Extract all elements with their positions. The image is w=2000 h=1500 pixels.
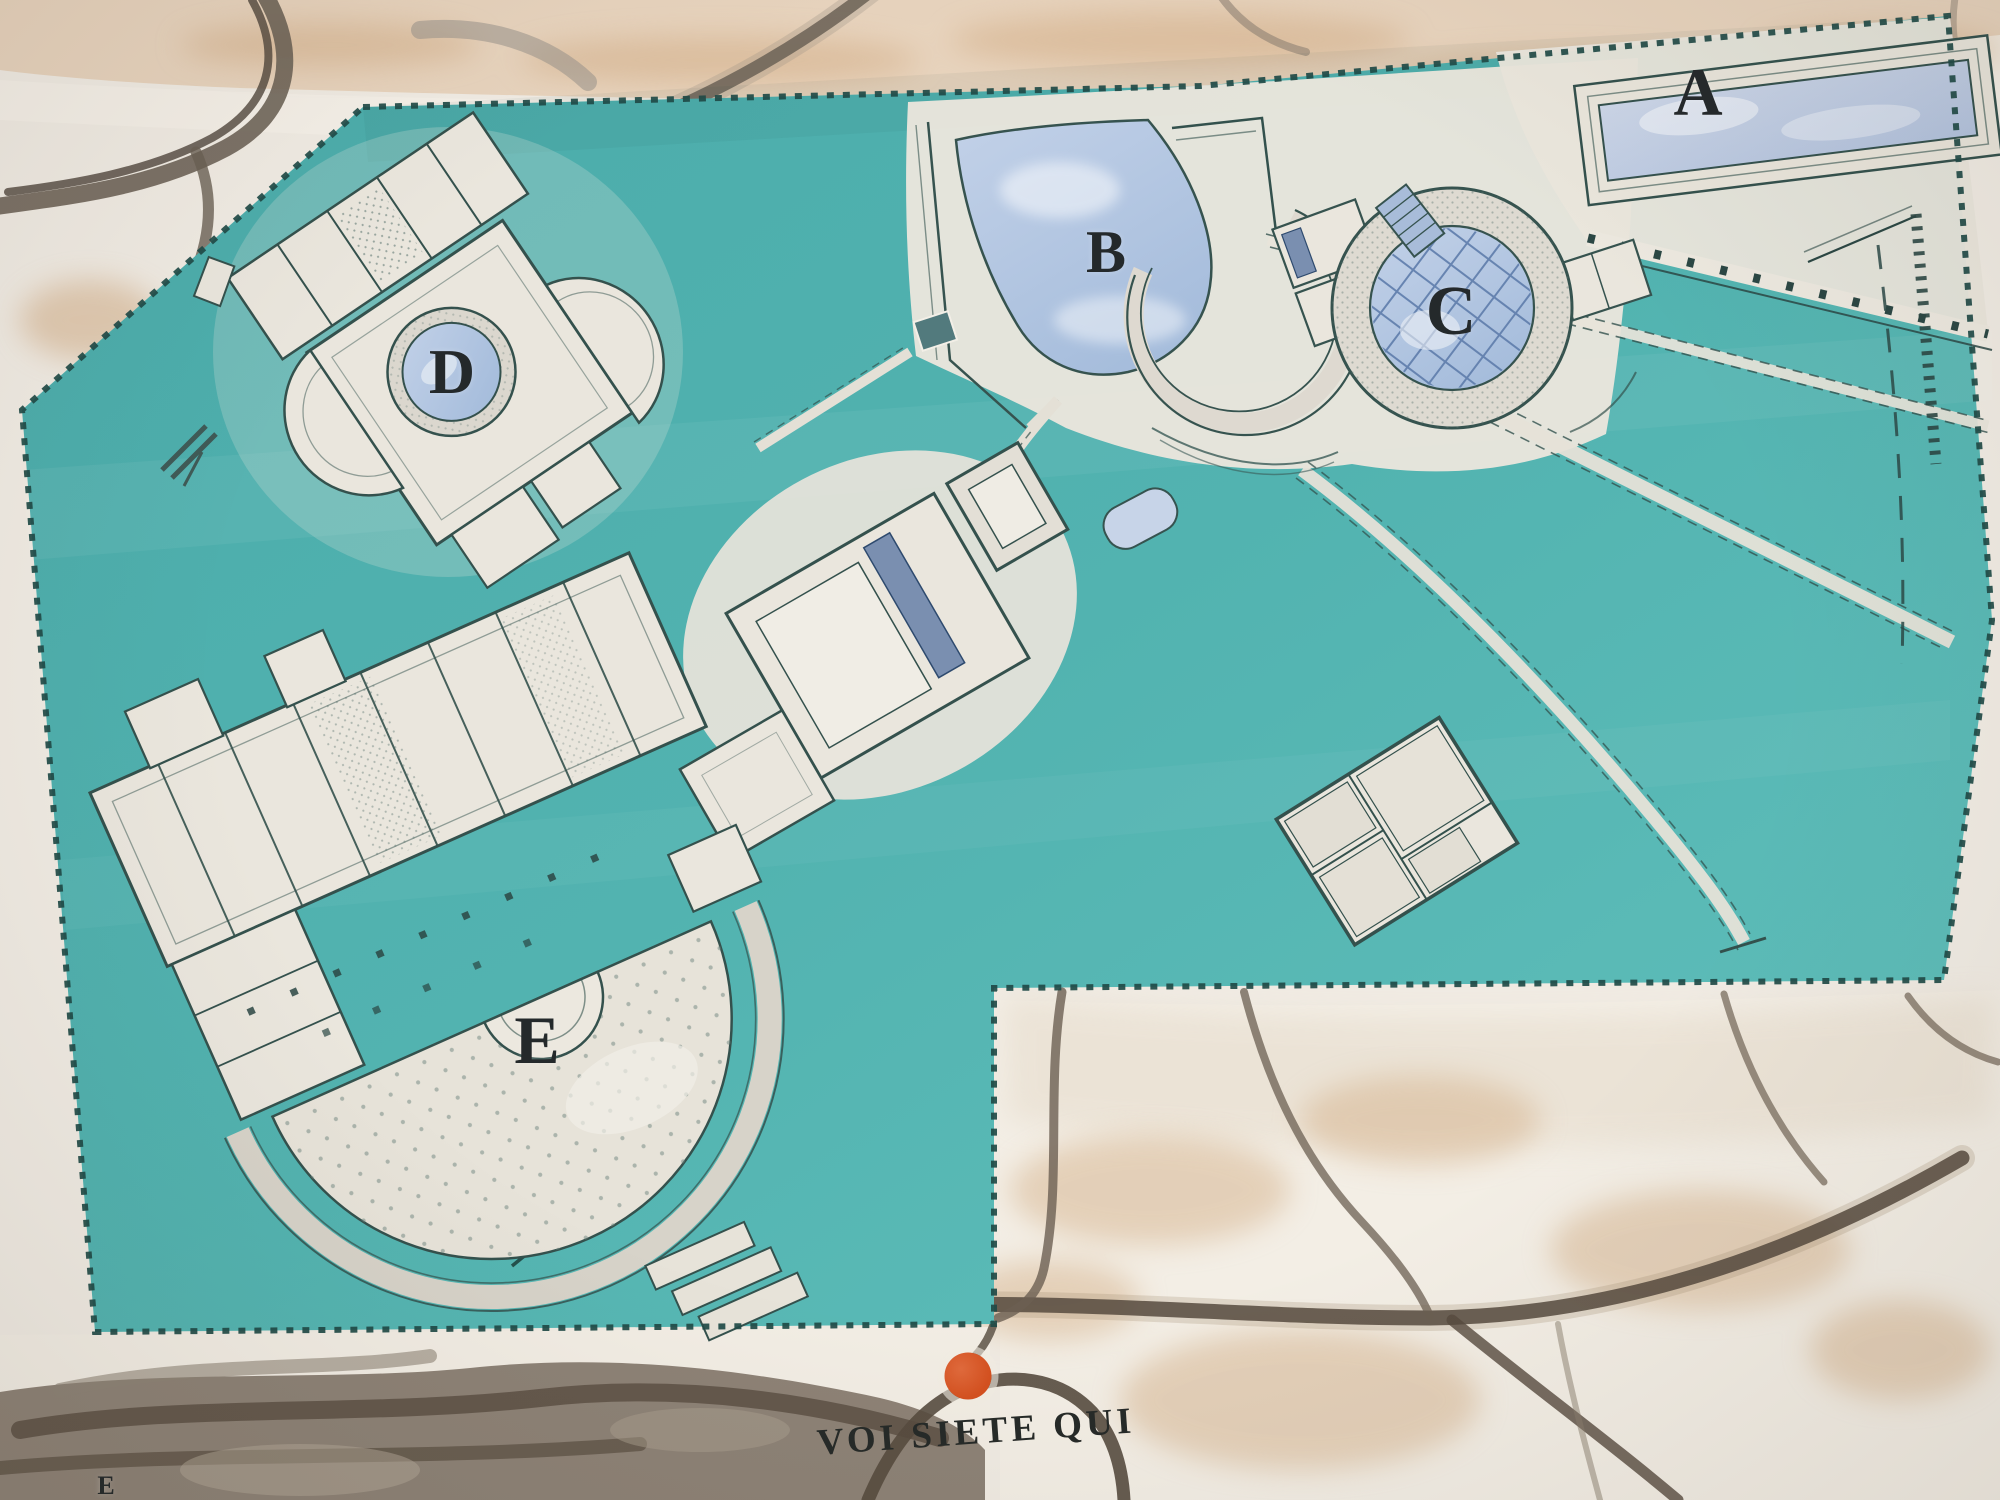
area-label-a: A: [1673, 58, 1722, 126]
site-map-panel: A B C D E E VOI SIETE QUI: [0, 0, 2000, 1500]
area-label-d: D: [429, 340, 475, 404]
you-are-here-dot: [945, 1353, 992, 1400]
site-plan-svg: [0, 0, 2000, 1500]
area-label-e: E: [514, 1006, 559, 1074]
area-label-b: B: [1086, 222, 1126, 282]
corner-label: E: [97, 1473, 114, 1499]
area-label-c: C: [1426, 277, 1477, 347]
